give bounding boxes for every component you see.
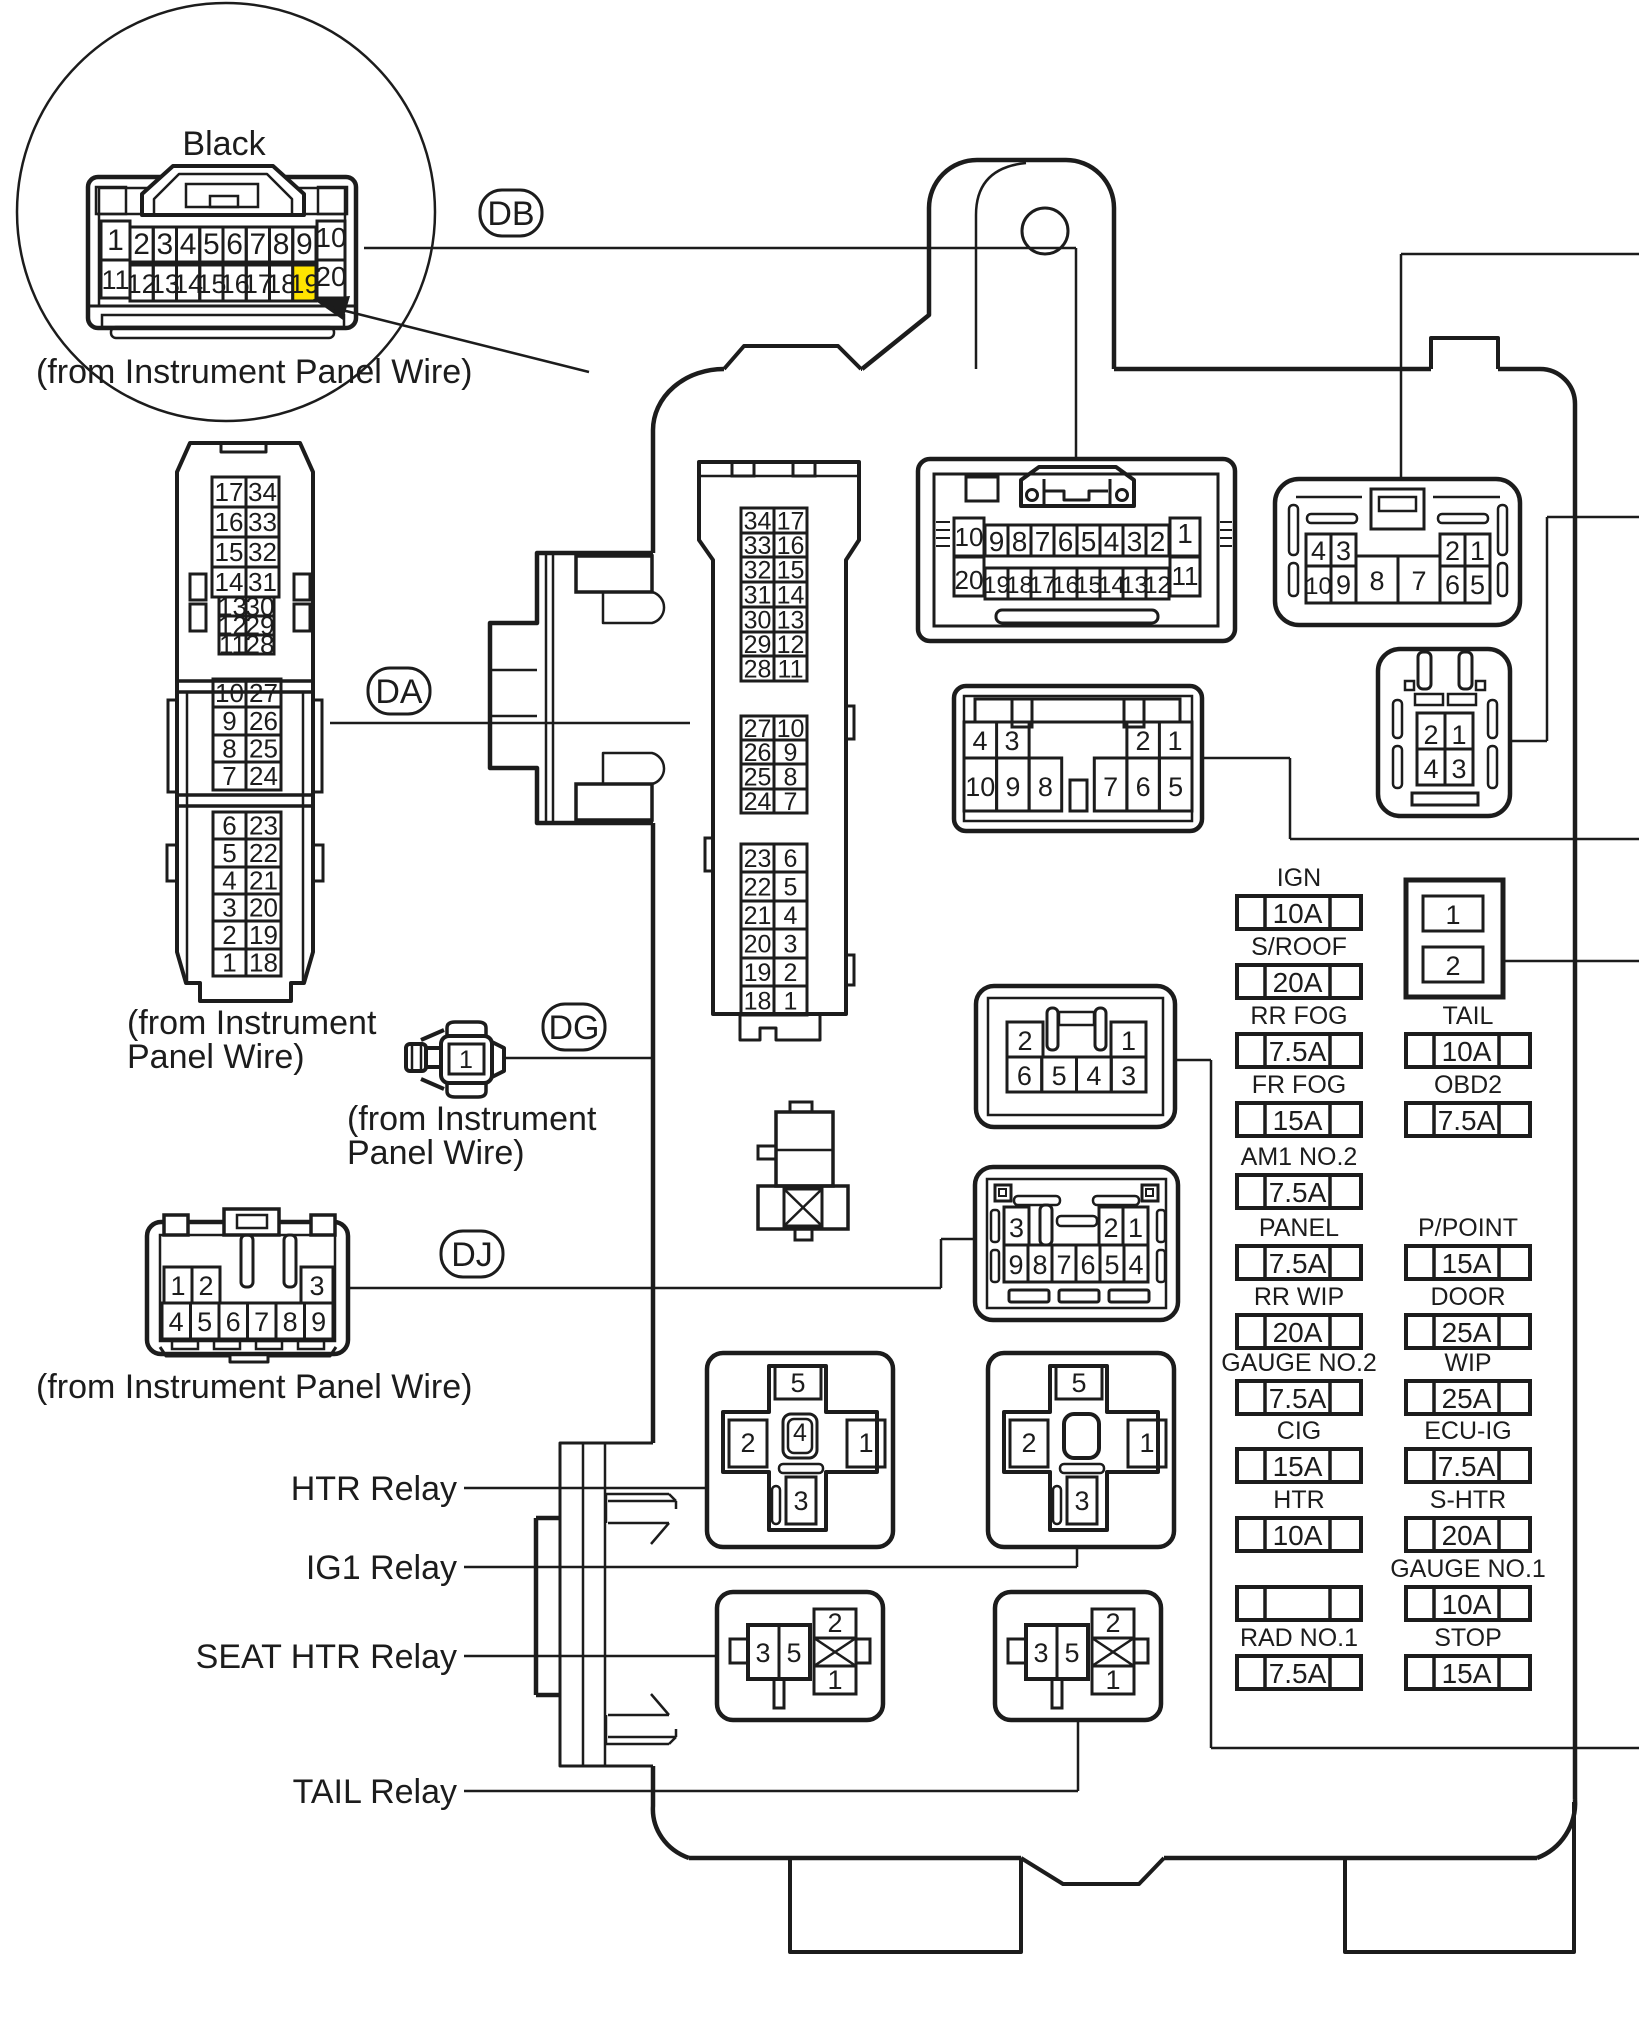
svg-text:23: 23 [744,845,772,873]
svg-text:10A: 10A [1273,898,1323,929]
svg-text:RAD NO.1: RAD NO.1 [1240,1624,1358,1652]
svg-text:4: 4 [784,902,798,930]
svg-text:20A: 20A [1273,967,1323,998]
svg-text:5: 5 [1052,1061,1067,1091]
svg-text:IGN: IGN [1277,864,1321,892]
svg-text:18: 18 [249,948,278,978]
svg-text:3: 3 [1033,1638,1048,1668]
svg-text:2: 2 [133,228,150,261]
svg-text:6: 6 [1136,772,1151,802]
svg-text:DA: DA [375,673,423,711]
svg-text:Panel Wire): Panel Wire) [127,1038,305,1076]
svg-text:1: 1 [784,987,798,1015]
svg-text:5: 5 [203,228,220,261]
svg-text:20A: 20A [1442,1520,1492,1551]
svg-text:5: 5 [197,1307,212,1337]
svg-text:AM1 NO.2: AM1 NO.2 [1241,1143,1358,1171]
svg-text:2: 2 [827,1608,842,1638]
svg-text:5: 5 [1104,1250,1119,1280]
svg-text:8: 8 [222,734,236,764]
svg-text:OBD2: OBD2 [1434,1071,1502,1099]
svg-text:18: 18 [744,987,772,1015]
svg-text:9: 9 [1008,1250,1023,1280]
svg-text:2: 2 [784,959,798,987]
svg-text:7: 7 [222,761,236,791]
svg-text:11: 11 [1172,561,1199,591]
svg-text:SEAT HTR Relay: SEAT HTR Relay [196,1638,457,1676]
svg-text:HTR: HTR [1273,1486,1324,1514]
svg-text:6: 6 [226,228,243,261]
svg-text:9: 9 [989,526,1005,557]
svg-text:2: 2 [1103,1213,1118,1243]
svg-text:DJ: DJ [451,1236,493,1274]
svg-text:DB: DB [487,195,534,233]
svg-text:8: 8 [283,1307,298,1337]
svg-text:7: 7 [250,228,267,261]
svg-text:5: 5 [790,1368,805,1398]
svg-text:3: 3 [1451,754,1466,784]
svg-text:2: 2 [1135,726,1150,756]
svg-text:15A: 15A [1273,1105,1323,1136]
svg-text:6: 6 [1017,1061,1032,1091]
svg-text:(from Instrument Panel Wire): (from Instrument Panel Wire) [36,353,472,391]
svg-text:3: 3 [1004,726,1019,756]
svg-text:1: 1 [170,1271,185,1301]
svg-text:GAUGE NO.2: GAUGE NO.2 [1221,1349,1377,1377]
svg-text:7.5A: 7.5A [1269,1177,1327,1208]
svg-text:TAIL Relay: TAIL Relay [293,1773,457,1811]
svg-text:3: 3 [309,1271,324,1301]
svg-text:27: 27 [249,678,278,708]
svg-text:1: 1 [222,948,236,978]
svg-text:16: 16 [215,507,244,537]
svg-text:STOP: STOP [1434,1624,1502,1652]
svg-text:5: 5 [222,838,236,868]
svg-text:28: 28 [744,655,772,683]
svg-text:DOOR: DOOR [1431,1283,1506,1311]
svg-text:GAUGE NO.1: GAUGE NO.1 [1390,1555,1546,1583]
svg-text:2: 2 [1445,951,1460,981]
svg-text:20A: 20A [1273,1317,1323,1348]
svg-text:3: 3 [1009,1213,1024,1243]
svg-text:1: 1 [1139,1428,1154,1458]
svg-text:8: 8 [1369,566,1384,596]
svg-text:1: 1 [1445,900,1460,930]
svg-text:10: 10 [965,772,995,802]
svg-text:10: 10 [315,222,346,253]
svg-text:4: 4 [1311,536,1326,566]
svg-text:23: 23 [249,811,278,841]
svg-text:1: 1 [1451,720,1466,750]
svg-text:10A: 10A [1442,1589,1492,1620]
svg-text:24: 24 [249,761,278,791]
svg-text:1: 1 [858,1428,873,1458]
svg-text:25: 25 [249,734,278,764]
svg-text:12: 12 [1144,572,1171,599]
svg-text:15A: 15A [1273,1451,1323,1482]
svg-text:2: 2 [740,1428,755,1458]
svg-text:4: 4 [169,1307,184,1337]
svg-text:4: 4 [972,726,987,756]
svg-text:10A: 10A [1442,1036,1492,1067]
svg-text:31: 31 [744,581,772,609]
svg-text:22: 22 [249,838,278,868]
svg-text:6: 6 [1445,570,1460,600]
svg-text:CIG: CIG [1277,1417,1321,1445]
svg-text:2: 2 [1021,1428,1036,1458]
svg-text:(from Instrument: (from Instrument [127,1004,377,1042]
svg-text:4: 4 [1086,1061,1101,1091]
svg-text:7: 7 [784,788,798,816]
svg-text:7: 7 [1056,1250,1071,1280]
svg-text:9: 9 [1005,772,1020,802]
svg-text:10: 10 [955,522,984,552]
svg-text:15: 15 [215,537,244,567]
svg-text:9: 9 [1336,570,1351,600]
svg-text:7: 7 [1411,566,1426,596]
svg-text:7: 7 [1035,526,1051,557]
svg-text:15: 15 [777,556,805,584]
svg-text:1: 1 [1167,726,1182,756]
svg-text:5: 5 [1071,1368,1086,1398]
svg-text:19: 19 [744,959,772,987]
svg-text:7: 7 [1103,772,1118,802]
svg-text:15A: 15A [1442,1248,1492,1279]
svg-text:1: 1 [1128,1213,1143,1243]
svg-text:(from Instrument: (from Instrument [347,1100,597,1138]
svg-text:20: 20 [744,930,772,958]
svg-text:11: 11 [778,655,804,683]
svg-text:3: 3 [1121,1061,1136,1091]
svg-text:2: 2 [1017,1026,1032,1056]
svg-text:1: 1 [107,224,124,257]
svg-text:4: 4 [793,1419,807,1447]
svg-text:7.5A: 7.5A [1269,1036,1327,1067]
svg-text:2: 2 [222,920,236,950]
svg-text:14: 14 [777,581,805,609]
svg-text:5: 5 [1081,526,1097,557]
svg-text:3: 3 [793,1486,808,1516]
svg-text:Panel Wire): Panel Wire) [347,1134,525,1172]
svg-text:S-HTR: S-HTR [1430,1486,1506,1514]
svg-text:3: 3 [755,1638,770,1668]
svg-text:1: 1 [1470,536,1485,566]
svg-text:3: 3 [1336,536,1351,566]
svg-text:TAIL: TAIL [1443,1002,1494,1030]
svg-text:(from Instrument Panel Wire): (from Instrument Panel Wire) [36,1368,472,1406]
svg-text:3: 3 [222,893,236,923]
svg-text:Black: Black [182,125,266,163]
svg-text:4: 4 [1128,1250,1143,1280]
svg-text:DG: DG [549,1009,600,1047]
svg-text:10: 10 [215,678,244,708]
svg-text:25A: 25A [1442,1317,1492,1348]
svg-text:2: 2 [1150,526,1166,557]
svg-text:2: 2 [198,1271,213,1301]
svg-text:RR FOG: RR FOG [1250,1002,1347,1030]
svg-text:1: 1 [827,1665,842,1695]
svg-text:WIP: WIP [1444,1349,1491,1377]
svg-text:9: 9 [222,706,236,736]
svg-text:3: 3 [784,930,798,958]
svg-text:32: 32 [744,556,772,584]
svg-text:22: 22 [744,873,772,901]
svg-text:7.5A: 7.5A [1438,1105,1496,1136]
svg-text:HTR Relay: HTR Relay [291,1470,457,1508]
svg-text:4: 4 [222,866,236,896]
svg-text:15A: 15A [1442,1658,1492,1689]
svg-text:6: 6 [1058,526,1074,557]
svg-text:1: 1 [1121,1026,1136,1056]
svg-text:8: 8 [1038,772,1053,802]
svg-text:9: 9 [296,228,313,261]
svg-text:1: 1 [1177,518,1193,549]
svg-text:32: 32 [248,537,277,567]
svg-text:IG1 Relay: IG1 Relay [306,1549,457,1587]
svg-text:24: 24 [744,788,772,816]
svg-text:4: 4 [1104,526,1120,557]
svg-text:7.5A: 7.5A [1269,1248,1327,1279]
svg-text:4: 4 [180,228,197,261]
svg-text:21: 21 [249,866,278,896]
svg-text:10A: 10A [1273,1520,1323,1551]
svg-text:P/POINT: P/POINT [1418,1214,1518,1242]
svg-text:10: 10 [1305,573,1332,600]
svg-text:5: 5 [1470,570,1485,600]
svg-text:FR FOG: FR FOG [1252,1071,1346,1099]
svg-text:9: 9 [311,1307,326,1337]
svg-text:6: 6 [222,811,236,841]
svg-text:5: 5 [784,873,798,901]
svg-text:11: 11 [219,630,246,660]
svg-text:RR WIP: RR WIP [1254,1283,1344,1311]
svg-text:7.5A: 7.5A [1269,1383,1327,1414]
svg-text:2: 2 [1105,1608,1120,1638]
svg-text:7: 7 [254,1307,269,1337]
svg-text:5: 5 [1168,772,1183,802]
svg-text:20: 20 [955,565,984,595]
svg-text:1: 1 [1105,1665,1120,1695]
svg-text:8: 8 [1032,1250,1047,1280]
svg-text:2: 2 [1445,536,1460,566]
svg-text:6: 6 [226,1307,241,1337]
svg-text:3: 3 [1127,526,1143,557]
svg-text:1: 1 [459,1046,473,1074]
svg-text:28: 28 [246,630,275,660]
svg-text:8: 8 [273,228,290,261]
svg-text:33: 33 [248,507,277,537]
svg-text:26: 26 [249,706,278,736]
svg-text:6: 6 [1080,1250,1095,1280]
svg-text:6: 6 [784,845,798,873]
svg-text:20: 20 [315,261,346,292]
svg-text:19: 19 [249,920,278,950]
svg-text:11: 11 [101,265,129,295]
svg-text:3: 3 [1074,1486,1089,1516]
svg-text:S/ROOF: S/ROOF [1251,933,1347,961]
svg-text:20: 20 [249,893,278,923]
svg-text:5: 5 [786,1638,801,1668]
svg-text:PANEL: PANEL [1259,1214,1339,1242]
svg-text:25A: 25A [1442,1383,1492,1414]
svg-text:ECU-IG: ECU-IG [1424,1417,1512,1445]
svg-text:34: 34 [248,477,277,507]
svg-text:2: 2 [1423,720,1438,750]
svg-text:8: 8 [1012,526,1028,557]
svg-text:3: 3 [157,228,174,261]
svg-text:4: 4 [1423,754,1438,784]
svg-text:5: 5 [1064,1638,1079,1668]
svg-text:7.5A: 7.5A [1269,1658,1327,1689]
svg-text:7.5A: 7.5A [1438,1451,1496,1482]
svg-text:21: 21 [744,902,772,930]
svg-text:17: 17 [215,477,244,507]
